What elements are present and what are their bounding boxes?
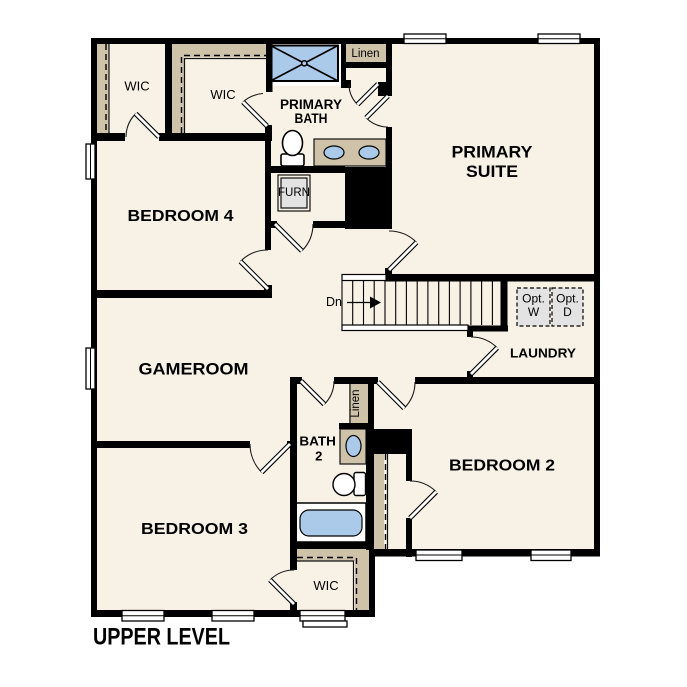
svg-text:BEDROOM 3: BEDROOM 3	[141, 521, 248, 538]
svg-text:PRIMARY: PRIMARY	[280, 97, 342, 112]
svg-text:W: W	[528, 305, 540, 319]
svg-text:WIC: WIC	[313, 578, 338, 593]
svg-text:LAUNDRY: LAUNDRY	[510, 346, 576, 361]
svg-text:D: D	[563, 305, 572, 319]
svg-text:UPPER LEVEL: UPPER LEVEL	[93, 624, 230, 651]
svg-text:BEDROOM 2: BEDROOM 2	[449, 458, 555, 475]
svg-text:WIC: WIC	[210, 87, 235, 102]
svg-text:GAMEROOM: GAMEROOM	[139, 360, 249, 379]
svg-text:FURN: FURN	[278, 187, 310, 199]
svg-text:BATH: BATH	[299, 434, 336, 449]
svg-text:SUITE: SUITE	[466, 162, 518, 181]
svg-text:Opt.: Opt.	[556, 292, 579, 306]
svg-text:BEDROOM 4: BEDROOM 4	[128, 208, 234, 225]
svg-text:Linen: Linen	[351, 48, 379, 60]
svg-text:WIC: WIC	[124, 79, 149, 94]
svg-text:PRIMARY: PRIMARY	[452, 143, 534, 162]
svg-text:Dn: Dn	[326, 295, 342, 309]
svg-text:2: 2	[315, 449, 322, 464]
svg-text:BATH: BATH	[295, 111, 328, 126]
svg-text:Opt.: Opt.	[522, 292, 545, 306]
svg-text:Linen: Linen	[350, 389, 362, 417]
